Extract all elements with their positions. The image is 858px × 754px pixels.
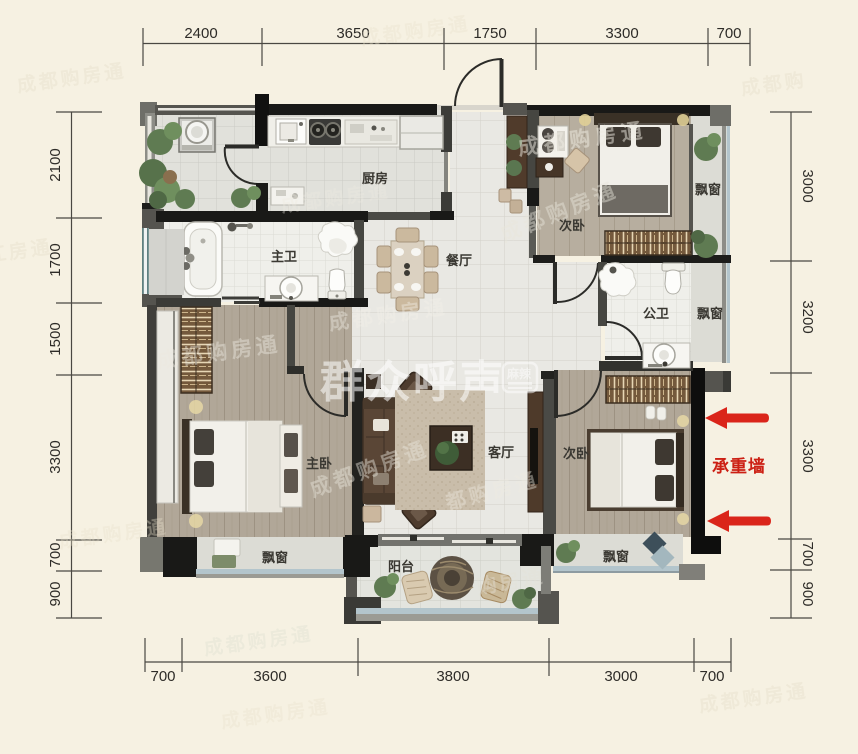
svg-text:700: 700 bbox=[150, 668, 175, 685]
svg-text:900: 900 bbox=[799, 581, 816, 606]
svg-text:承重墙: 承重墙 bbox=[712, 456, 766, 476]
svg-text:3000: 3000 bbox=[799, 169, 816, 202]
svg-text:3000: 3000 bbox=[604, 668, 637, 685]
svg-text:3300: 3300 bbox=[47, 440, 64, 473]
svg-text:阳台: 阳台 bbox=[388, 559, 414, 574]
svg-text:公卫: 公卫 bbox=[643, 306, 669, 321]
svg-text:飘窗: 飘窗 bbox=[697, 306, 723, 321]
svg-text:次卧: 次卧 bbox=[563, 446, 589, 461]
svg-text:2400: 2400 bbox=[184, 25, 217, 42]
svg-text:飘窗: 飘窗 bbox=[695, 182, 721, 197]
svg-text:餐厅: 餐厅 bbox=[445, 253, 472, 268]
svg-text:700: 700 bbox=[699, 668, 724, 685]
svg-text:飘窗: 飘窗 bbox=[603, 549, 629, 564]
svg-text:1750: 1750 bbox=[473, 25, 506, 42]
svg-text:群众呼声: 群众呼声 bbox=[320, 358, 506, 407]
svg-text:2100: 2100 bbox=[47, 148, 64, 181]
svg-text:3800: 3800 bbox=[436, 668, 469, 685]
svg-text:700: 700 bbox=[799, 541, 816, 566]
svg-text:3600: 3600 bbox=[253, 668, 286, 685]
svg-text:3300: 3300 bbox=[605, 25, 638, 42]
svg-text:主卧: 主卧 bbox=[306, 456, 332, 471]
svg-text:主卫: 主卫 bbox=[271, 249, 297, 264]
svg-text:1500: 1500 bbox=[47, 322, 64, 355]
svg-text:700: 700 bbox=[716, 25, 741, 42]
svg-text:3200: 3200 bbox=[799, 300, 816, 333]
svg-text:900: 900 bbox=[47, 581, 64, 606]
svg-text:3300: 3300 bbox=[799, 439, 816, 472]
svg-text:飘窗: 飘窗 bbox=[262, 550, 288, 565]
svg-text:麻辣: 麻辣 bbox=[506, 366, 532, 381]
svg-text:客厅: 客厅 bbox=[488, 445, 514, 460]
